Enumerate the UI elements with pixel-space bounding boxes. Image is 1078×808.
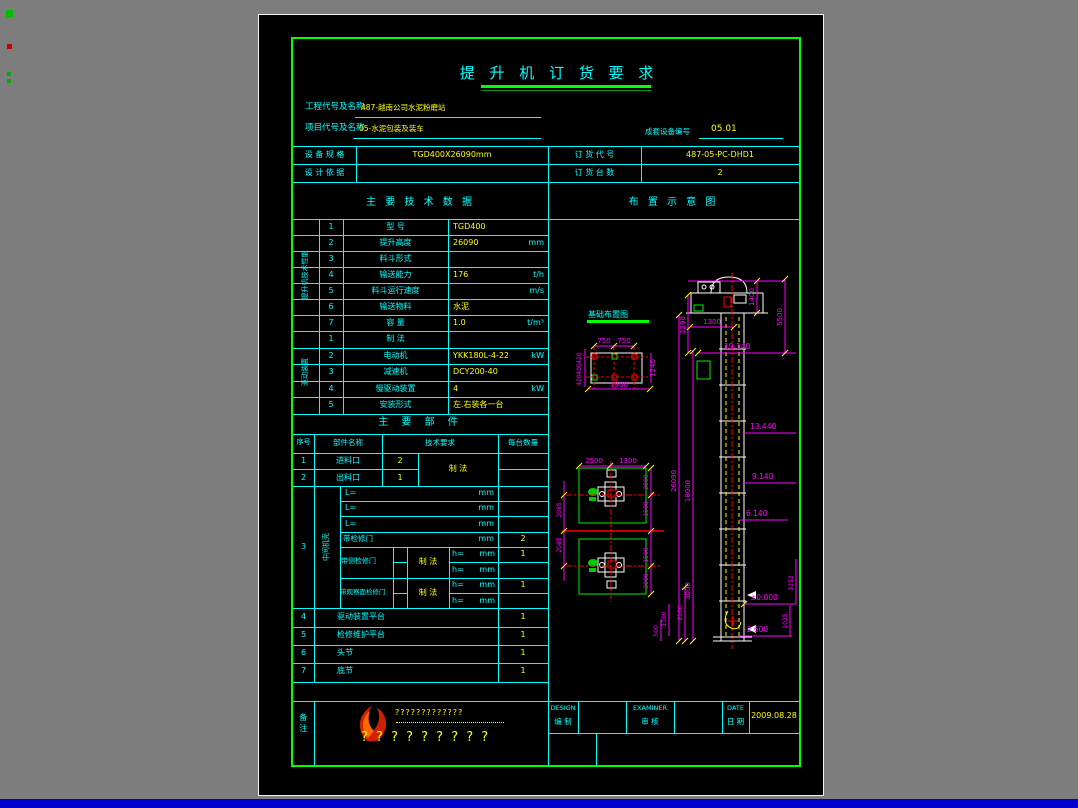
tech-row-name: 减速机 [343, 368, 448, 377]
length-unit: mm [464, 504, 494, 513]
table-grid-line [340, 486, 341, 608]
dim-3252: 3252 [788, 575, 795, 590]
dim-420: 420 [576, 374, 583, 386]
length-prefix: L= [345, 504, 356, 513]
tech-row-name: 输送能力 [343, 271, 448, 280]
table-grid-line [578, 701, 579, 733]
table-grid-line [498, 434, 499, 682]
spec-value: TGD400X26090mm [356, 151, 548, 160]
level-9140: 9.140 [752, 472, 774, 481]
title-underline [481, 85, 651, 88]
table-grid-line [293, 627, 548, 628]
dim-2500: 2500 [585, 457, 603, 465]
viewer-artifact [7, 72, 11, 76]
height-prefix: h= [452, 597, 464, 606]
layout-diagram: 基础布置图 750 750 1900 1240 420 400 420 [548, 219, 799, 701]
tech-row-no: 3 [319, 255, 343, 264]
viewer-artifact [6, 10, 13, 17]
section-layout: 布 置 示 意 图 [548, 197, 799, 208]
table-grid-line [293, 164, 799, 165]
length-prefix: L= [345, 520, 356, 529]
item-code-value: 05-水泥包装及装车 [359, 125, 424, 133]
tech-row-name: 料斗运行速度 [343, 287, 448, 296]
table-grid-line [293, 608, 548, 609]
foundation-plan: 基础布置图 750 750 1900 1240 420 400 420 [576, 309, 657, 392]
tech-row-unit: t/m³ [469, 319, 544, 328]
tech-row-no: 4 [319, 385, 343, 394]
table-grid-line [722, 701, 723, 733]
section-main-parts: 主 要 部 件 [293, 417, 548, 428]
dim-1400: 1400 [748, 288, 756, 306]
parts-header-req: 技术要求 [382, 439, 498, 447]
table-grid-line [596, 733, 597, 765]
access-door-unit: mm [464, 535, 494, 544]
table-grid-line [393, 593, 407, 594]
table-grid-line [382, 434, 383, 486]
tech-row-unit: kW [469, 352, 544, 361]
tech-row-unit: kW [469, 385, 544, 394]
part-row-no: 5 [293, 631, 314, 640]
title-underline-2 [481, 90, 651, 91]
table-grid-line [449, 547, 450, 608]
table-grid-line [407, 547, 408, 608]
order-qty-value: 2 [641, 169, 799, 178]
table-grid-line [293, 315, 548, 316]
dim-2000: 2000 [643, 573, 650, 588]
table-grid-line [293, 434, 548, 435]
table-grid-line [393, 547, 394, 608]
part-row-qty: 1 [498, 649, 548, 658]
dim-1300: 1300 [703, 318, 721, 326]
table-grid-line [674, 701, 675, 733]
height-unit: mm [469, 597, 495, 606]
dim-1500: 1500 [643, 547, 650, 562]
tech-row-no: 2 [319, 239, 343, 248]
parts-header-no: 序号 [293, 439, 314, 447]
table-grid-line [293, 486, 548, 487]
dim-2085: 2085 [556, 537, 563, 552]
date-label-cn: 日 期 [722, 718, 749, 726]
tech-row-value: 左.右装各一台 [453, 401, 504, 410]
part-name-outlet: 出料口 [314, 474, 382, 483]
part-row-no: 6 [293, 649, 314, 658]
side-door-name: 带侧检修门 [341, 558, 376, 566]
part-row-no: 3 [293, 543, 314, 552]
table-grid-line [293, 235, 548, 236]
level-19140: 19.140 [724, 342, 750, 351]
tech-row-name: 提升高度 [343, 239, 448, 248]
dim-1300: 1300 [619, 457, 637, 465]
side-door-qty: 1 [498, 550, 548, 559]
tech-row-no: 2 [319, 352, 343, 361]
access-door-qty: 2 [498, 535, 548, 544]
dim-1025: 1025 [782, 613, 789, 628]
table-grid-line [548, 146, 549, 765]
table-grid-line [293, 469, 418, 470]
tech-row-no: 4 [319, 271, 343, 280]
tech-row-unit: t/h [469, 271, 544, 280]
set-no-value: 05.01 [711, 125, 737, 135]
table-grid-line [293, 414, 548, 415]
height-prefix: h= [452, 550, 464, 559]
length-unit: mm [464, 520, 494, 529]
part-count-outlet: 1 [382, 474, 418, 483]
table-grid-line [293, 364, 548, 365]
tech-row-value: 水泥 [453, 303, 469, 312]
examiner-label-cn: 审 核 [626, 718, 674, 726]
tech-row-no: 1 [319, 335, 343, 344]
tech-row-value: 1.0 [453, 319, 466, 328]
height-prefix: h= [452, 581, 464, 590]
parts-header-name: 部件名称 [314, 439, 382, 447]
dim-750: 750 [597, 337, 610, 345]
side-door-req: 制 法 [407, 558, 449, 567]
table-grid-line [293, 348, 548, 349]
tech-row-name: 型 号 [343, 223, 448, 232]
set-no-label: 成套设备编号 [645, 128, 690, 136]
table-grid-line [293, 645, 548, 646]
height-unit: mm [469, 566, 495, 575]
part-row-name: 检修维护平台 [337, 631, 385, 640]
table-grid-line [749, 701, 750, 733]
dim-2100: 2100 [677, 605, 684, 620]
project-code-label: 工程代号及名称 [305, 103, 365, 112]
item-code-label: 项目代号及名称 [305, 124, 365, 133]
tech-row-no: 1 [319, 223, 343, 232]
part-row-no: 2 [293, 474, 314, 483]
face-door-req: 制 法 [407, 589, 449, 598]
field-underline [355, 117, 541, 118]
order-code-value: 487-05-PC-DHD1 [641, 151, 799, 160]
tech-row-unit: mm [469, 239, 544, 248]
level-0000: ±0.000 [750, 593, 778, 602]
company-name-placeholder-2: ? ? ? ? ? ? ? ? ? [361, 731, 490, 745]
company-name-dotted-line [396, 722, 504, 723]
company-name-placeholder: ????????????? [395, 709, 463, 718]
table-grid-line [626, 701, 627, 733]
part-row-no: 7 [293, 667, 314, 676]
parts-header-qty: 每台数量 [498, 439, 548, 447]
part-row-name: 底节 [337, 667, 353, 676]
table-grid-line [418, 453, 419, 486]
part-row-qty: 1 [498, 613, 548, 622]
dim-5500: 5500 [776, 308, 784, 326]
access-door-name: 带检修门 [343, 535, 373, 543]
tech-row-name: 安装形式 [343, 401, 448, 410]
table-grid-line [293, 663, 548, 664]
tech-row-value: 176 [453, 271, 468, 280]
face-door-name: 带观察面检修门 [340, 589, 386, 596]
foundation-title-underline [587, 320, 649, 323]
order-code-label: 订 货 代 号 [548, 151, 641, 160]
tech-row-no: 5 [319, 401, 343, 410]
part-row-no: 4 [293, 613, 314, 622]
dim-420: 420 [576, 352, 583, 364]
foundation-title: 基础布置图 [588, 309, 628, 319]
table-grid-line [293, 381, 548, 382]
bottom-scrollbar[interactable] [0, 799, 1078, 808]
part-name-inlet: 进料口 [314, 457, 382, 466]
tech-row-name: 慢驱动装置 [343, 385, 448, 394]
table-grid-line [340, 501, 548, 502]
table-grid-line [293, 146, 799, 147]
dim-500: 500 [653, 625, 660, 637]
dim-1240: 1240 [649, 359, 657, 377]
part-row-qty: 1 [498, 667, 548, 676]
table-grid-line [548, 733, 799, 734]
tech-row-name: 料斗形式 [343, 255, 448, 264]
table-grid-line [293, 182, 799, 183]
tech-row-unit: m/s [469, 287, 544, 296]
table-grid-line [314, 701, 315, 765]
viewer-background: { "window": {"background":"#7d7d7d","can… [0, 0, 1078, 808]
drawing-title: 提 升 机 订 货 要 求 [379, 65, 739, 82]
tech-row-value: DCY200-40 [453, 368, 498, 377]
table-grid-line [340, 547, 548, 548]
dim-1500: 1500 [643, 501, 650, 516]
table-grid-line [498, 469, 548, 470]
tech-row-no: 6 [319, 303, 343, 312]
viewer-artifact [7, 44, 12, 49]
height-unit: mm [469, 550, 495, 559]
table-grid-line [293, 267, 548, 268]
remark-label: 备注 [298, 713, 307, 735]
table-grid-line [293, 283, 548, 284]
part-row-no: 1 [293, 457, 314, 466]
part-req-make: 制 法 [418, 465, 498, 474]
face-door-qty: 1 [498, 581, 548, 590]
height-unit: mm [469, 581, 495, 590]
elevator-elevation: 26090 18000 3000 2290 1300 1400 5500 19.… [653, 273, 796, 649]
date-value: 2009.08.28 [749, 712, 799, 721]
examiner-label-en: EXAMINER [626, 705, 674, 712]
part-row-qty: 1 [498, 631, 548, 640]
field-underline [699, 138, 783, 139]
project-code-value: 487-越南公司水泥粉磨站 [361, 104, 446, 112]
dim-2290: 2290 [679, 316, 687, 334]
tech-row-value: TGD400 [453, 223, 486, 232]
tech-row-no: 5 [319, 287, 343, 296]
table-grid-line [448, 219, 449, 414]
tech-row-name: 输送物料 [343, 303, 448, 312]
table-grid-line [340, 516, 548, 517]
dim-1100: 1100 [661, 611, 668, 626]
date-label-en: DATE [722, 705, 749, 712]
level-6140: 6.140 [746, 509, 768, 518]
order-qty-label: 订 货 台 数 [548, 169, 641, 178]
table-grid-line [293, 701, 799, 702]
table-grid-line [293, 453, 548, 454]
cad-drawing-canvas: 提 升 机 订 货 要 求 工程代号及名称 487-越南公司水泥粉磨站 项目代号… [258, 14, 824, 796]
table-grid-line [293, 682, 548, 683]
table-grid-line [293, 219, 799, 220]
level-13440: 13.440 [750, 422, 776, 431]
table-grid-line [314, 434, 315, 682]
length-prefix: L= [345, 489, 356, 498]
table-grid-line [340, 532, 548, 533]
tech-row-name: 容 量 [343, 319, 448, 328]
dim-2000: 2000 [643, 474, 650, 489]
table-grid-line [393, 562, 407, 563]
viewer-artifact [7, 79, 11, 83]
table-grid-line [293, 397, 548, 398]
design-basis-label: 设 计 依 据 [293, 169, 356, 178]
length-unit: mm [464, 489, 494, 498]
section-tech-data: 主 要 技 术 数 据 [293, 197, 548, 208]
part-row-name: 驱动装置平台 [337, 613, 385, 622]
table-grid-line [293, 251, 548, 252]
dim-18000: 18000 [684, 480, 692, 502]
table-grid-line [293, 299, 548, 300]
spec-label: 设 备 规 格 [293, 151, 356, 160]
field-underline [353, 138, 541, 139]
tech-row-no: 7 [319, 319, 343, 328]
tech-row-name: 制 法 [343, 335, 448, 344]
dim-26090: 26090 [670, 470, 678, 492]
tech-group-a-label: 提升机技术性能 [302, 251, 310, 300]
middle-casing-group-label: 中间机壳 [323, 533, 331, 561]
design-label-cn: 编 制 [548, 718, 578, 726]
dim-2085: 2085 [556, 502, 563, 517]
table-grid-line [641, 146, 642, 182]
part-count-inlet: 2 [382, 457, 418, 466]
level-minus-2600: -2.600 [744, 625, 768, 634]
dim-1900: 1900 [610, 381, 628, 389]
tech-row-no: 3 [319, 368, 343, 377]
dim-750: 750 [617, 337, 630, 345]
elevator-plan-view: 2500 1300 2085 2085 2000 1500 1500 2000 [556, 457, 664, 602]
tech-row-value: 4 [453, 385, 458, 394]
table-grid-line [340, 578, 548, 579]
part-row-name: 头节 [337, 649, 353, 658]
dim-400: 400 [576, 363, 583, 375]
tech-row-name: 电动机 [343, 352, 448, 361]
table-grid-line [293, 331, 548, 332]
design-label-en: DESIGN [548, 705, 578, 712]
table-grid-line [356, 146, 357, 182]
height-prefix: h= [452, 566, 464, 575]
